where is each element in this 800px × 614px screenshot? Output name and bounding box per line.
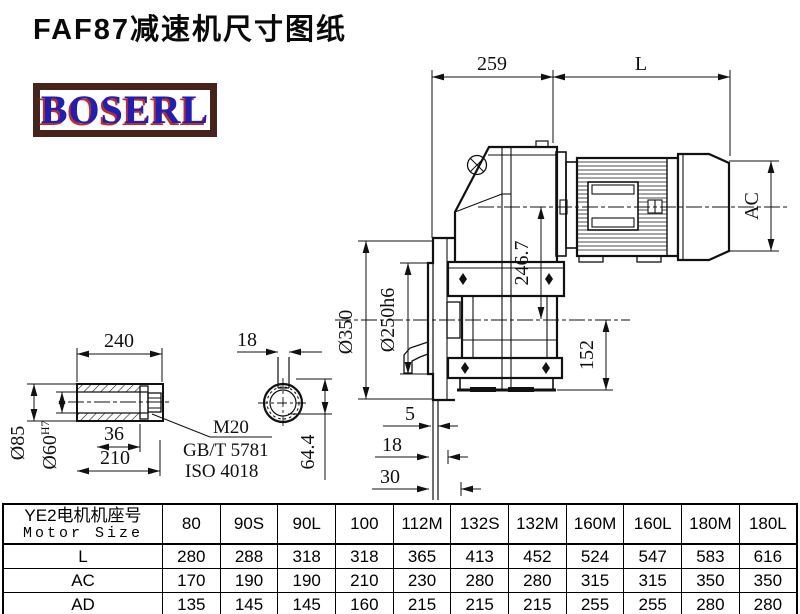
table-size-col: 132S	[451, 504, 509, 544]
table-cell: 288	[220, 544, 278, 569]
table-cell: 145	[220, 593, 278, 614]
page: 259 L AC 246.7 152 Ø350 Ø250h6 5 18 30 2…	[0, 0, 800, 614]
table-cell: 210	[336, 569, 394, 593]
table-size-col: 90L	[278, 504, 336, 544]
dim-bore: Ø60H7	[38, 420, 61, 469]
brand-logo-text: BOSERL	[41, 90, 209, 130]
table-cell: 255	[566, 593, 624, 614]
dim-key-len: 36	[104, 423, 124, 445]
table-cell: 350	[682, 569, 740, 593]
table-cell: 135	[163, 593, 221, 614]
table-header-en: Motor Size	[4, 525, 162, 542]
dim-keyway-height: 64.4	[297, 435, 319, 470]
table-header-row: YE2电机机座号 Motor Size 80 90S 90L 100 112M …	[3, 504, 797, 544]
brand-logo: BOSERL	[33, 83, 217, 137]
dim-bore-tol: H7	[38, 420, 52, 435]
dim-overall-width: 259	[477, 53, 507, 75]
dim-shaft-od: Ø85	[7, 426, 29, 460]
table-cell: 524	[566, 544, 624, 569]
dim-bore-dia: Ø60	[39, 435, 61, 469]
table-cell: 160	[336, 593, 394, 614]
table-cell: 350	[739, 569, 797, 593]
table-cell: 190	[278, 569, 336, 593]
motor-size-table: YE2电机机座号 Motor Size 80 90S 90L 100 112M …	[2, 503, 798, 614]
label-bolt: M20	[213, 417, 249, 438]
row-label: AC	[3, 569, 163, 593]
dim-center-height: 246.7	[511, 241, 533, 286]
table-cell: 145	[278, 593, 336, 614]
dim-flange-od: Ø350	[335, 310, 357, 354]
table-size-col: 100	[336, 504, 394, 544]
table-size-col: 160M	[566, 504, 624, 544]
dim-base-height: 152	[576, 340, 598, 370]
table-cell: 215	[393, 593, 451, 614]
dim-motor-length: L	[635, 53, 647, 75]
table-cell: 547	[624, 544, 682, 569]
label-bolt-std2: ISO 4018	[185, 461, 258, 482]
row-label: AD	[3, 593, 163, 614]
table-row-L: L 280 288 318 318 365 413 452 524 547 58…	[3, 544, 797, 569]
table-size-col: 180M	[682, 504, 740, 544]
table-cell: 365	[393, 544, 451, 569]
table-size-col: 160L	[624, 504, 682, 544]
page-title: FAF87减速机尺寸图纸	[33, 6, 347, 48]
table-cell: 215	[509, 593, 567, 614]
table-size-col: 180L	[739, 504, 797, 544]
label-bolt-std1: GB/T 5781	[183, 440, 269, 461]
table-cell: 583	[682, 544, 740, 569]
table-cell: 280	[682, 593, 740, 614]
dim-shaft-length: 240	[104, 330, 134, 352]
dim-offset-5: 5	[405, 403, 415, 425]
dim-flange-spigot: Ø250h6	[377, 288, 399, 352]
table-cell: 280	[163, 544, 221, 569]
table-cell: 255	[624, 593, 682, 614]
dim-offset-30: 30	[380, 466, 400, 488]
table-cell: 215	[451, 593, 509, 614]
table-cell: 318	[336, 544, 394, 569]
table-cell: 230	[393, 569, 451, 593]
table-size-col: 112M	[393, 504, 451, 544]
dim-keyway-width: 18	[237, 329, 257, 351]
table-cell: 280	[739, 593, 797, 614]
motor-nameplate	[588, 182, 662, 230]
output-flange	[404, 238, 460, 500]
table-row-AC: AC 170 190 190 210 230 280 280 315 315 3…	[3, 569, 797, 593]
table-size-col: 80	[163, 504, 221, 544]
table-header-cn: YE2电机机座号	[4, 506, 162, 525]
dim-offset-18: 18	[382, 434, 402, 456]
table-cell: 315	[624, 569, 682, 593]
table-cell: 318	[278, 544, 336, 569]
table-header-cell: YE2电机机座号 Motor Size	[3, 504, 163, 544]
row-label: L	[3, 544, 163, 569]
gearbox-housing	[448, 141, 564, 392]
dim-motor-ac: AC	[741, 192, 763, 220]
table-cell: 280	[451, 569, 509, 593]
table-cell: 315	[566, 569, 624, 593]
table-row-AD: AD 135 145 145 160 215 215 215 255 255 2…	[3, 593, 797, 614]
table-cell: 190	[220, 569, 278, 593]
table-cell: 452	[509, 544, 567, 569]
table-size-col: 90S	[220, 504, 278, 544]
dim-hub-len: 210	[100, 447, 130, 469]
bore-section-view	[258, 357, 308, 428]
table-cell: 280	[509, 569, 567, 593]
table-cell: 413	[451, 544, 509, 569]
table-cell: 170	[163, 569, 221, 593]
table-cell: 616	[739, 544, 797, 569]
table-size-col: 132M	[509, 504, 567, 544]
